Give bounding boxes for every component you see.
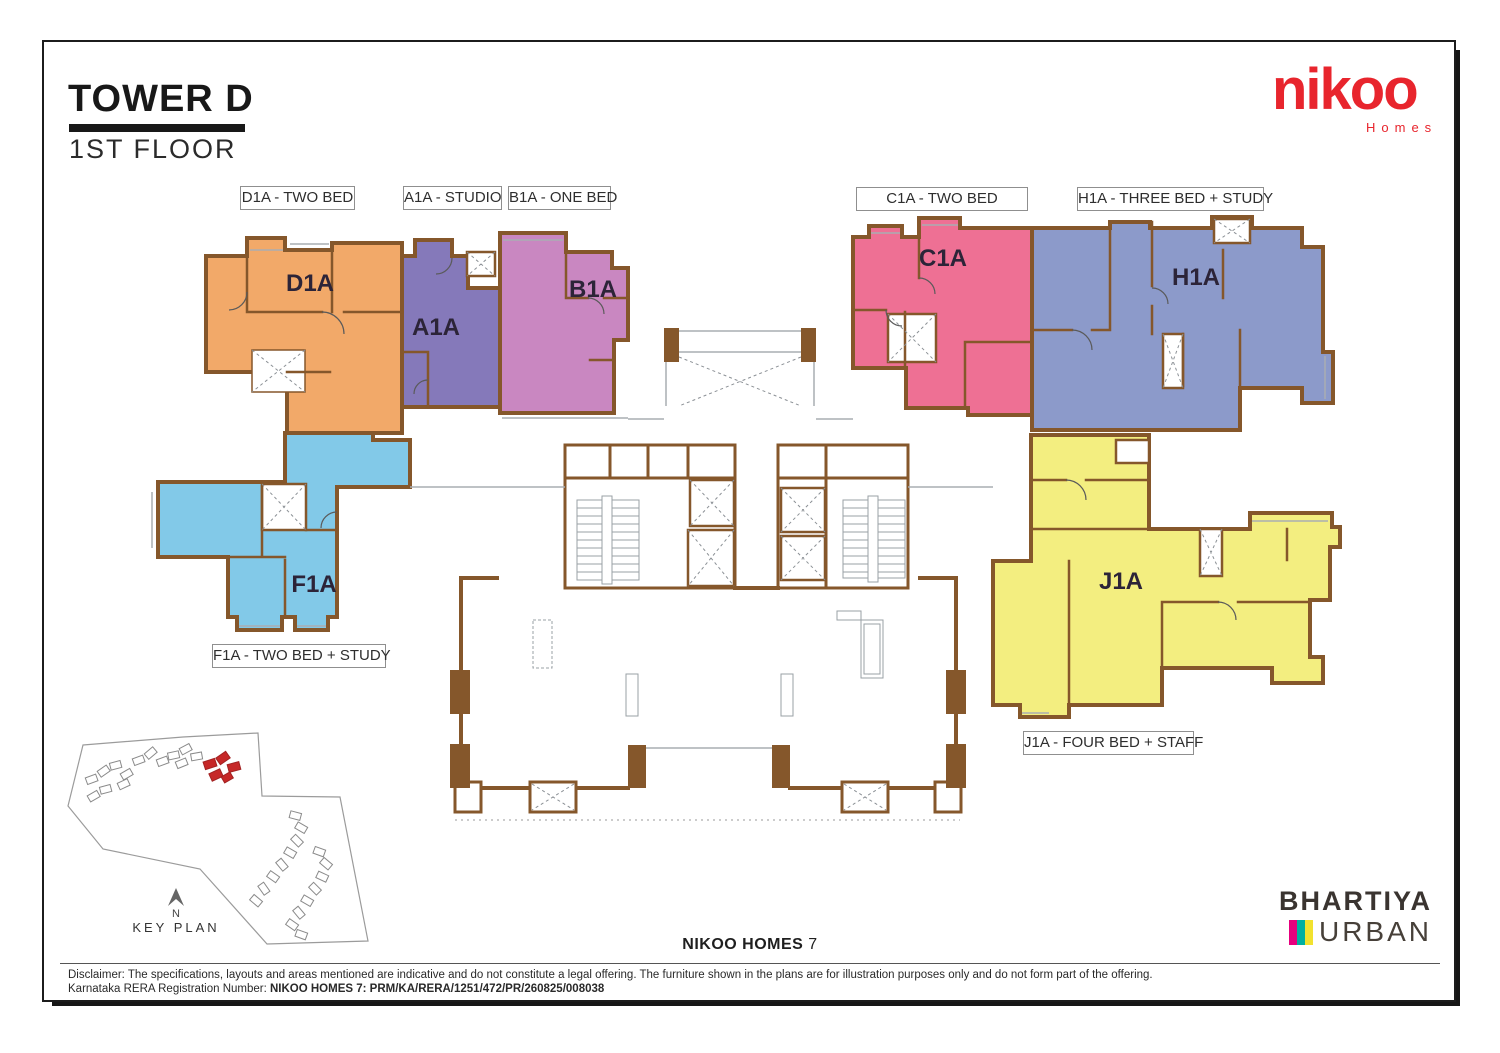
unit-label-H1A: H1A - THREE BED + STUDY [1077,187,1264,211]
unit-id-B1A: B1A [569,276,617,303]
unit-label-J1A: J1A - FOUR BED + STAFF [1023,731,1194,755]
key-plan-highlight-tower [203,751,241,783]
key-plan: N KEY PLAN [68,733,368,944]
project-name-bold: NIKOO HOMES [682,936,803,953]
page: TOWER D 1ST FLOOR nikoo Homes [0,0,1500,1053]
developer-sub: URBAN [1319,916,1432,948]
key-plan-label: KEY PLAN [132,920,219,935]
unit-id-A1A: A1A [412,314,460,341]
key-plan-buildings [85,744,332,940]
unit-label-D1A: D1A - TWO BED [240,186,355,210]
unit-id-F1A: F1A [291,571,336,598]
unit-D1A-area [206,238,402,433]
north-arrow-icon [168,888,184,906]
project-name-number: 7 [808,936,817,953]
unit-id-C1A: C1A [919,245,967,272]
unit-B1A-area [500,233,628,413]
plan-walls [158,217,1340,812]
unit-label-B1A: B1A - ONE BED [508,186,611,210]
disclaimer-line2: Karnataka RERA Registration Number: NIKO… [68,983,604,995]
disclaimer-separator [60,963,1440,964]
rera-prefix: Karnataka RERA Registration Number: [68,983,270,995]
north-label: N [172,908,180,920]
developer-logo: BHARTIYA [1240,886,1432,917]
unit-H1A-area [1032,217,1333,430]
unit-label-A1A: A1A - STUDIO [403,186,502,210]
rera-number: NIKOO HOMES 7: PRM/KA/RERA/1251/472/PR/2… [270,983,604,995]
unit-id-D1A: D1A [286,270,334,297]
developer-mark-icon [1289,920,1313,945]
unit-id-J1A: J1A [1099,568,1143,595]
unit-J1A-area [993,435,1340,717]
disclaimer-line1: Disclaimer: The specifications, layouts … [68,969,1153,981]
unit-label-C1A: C1A - TWO BED [856,187,1028,211]
developer-logo-row: URBAN [1240,916,1432,948]
project-name: NIKOO HOMES 7 [560,936,940,954]
lobby-walls [461,578,956,788]
unit-label-F1A: F1A - TWO BED + STUDY [212,644,386,668]
unit-id-H1A: H1A [1172,264,1220,291]
lobby-planters [455,782,961,812]
